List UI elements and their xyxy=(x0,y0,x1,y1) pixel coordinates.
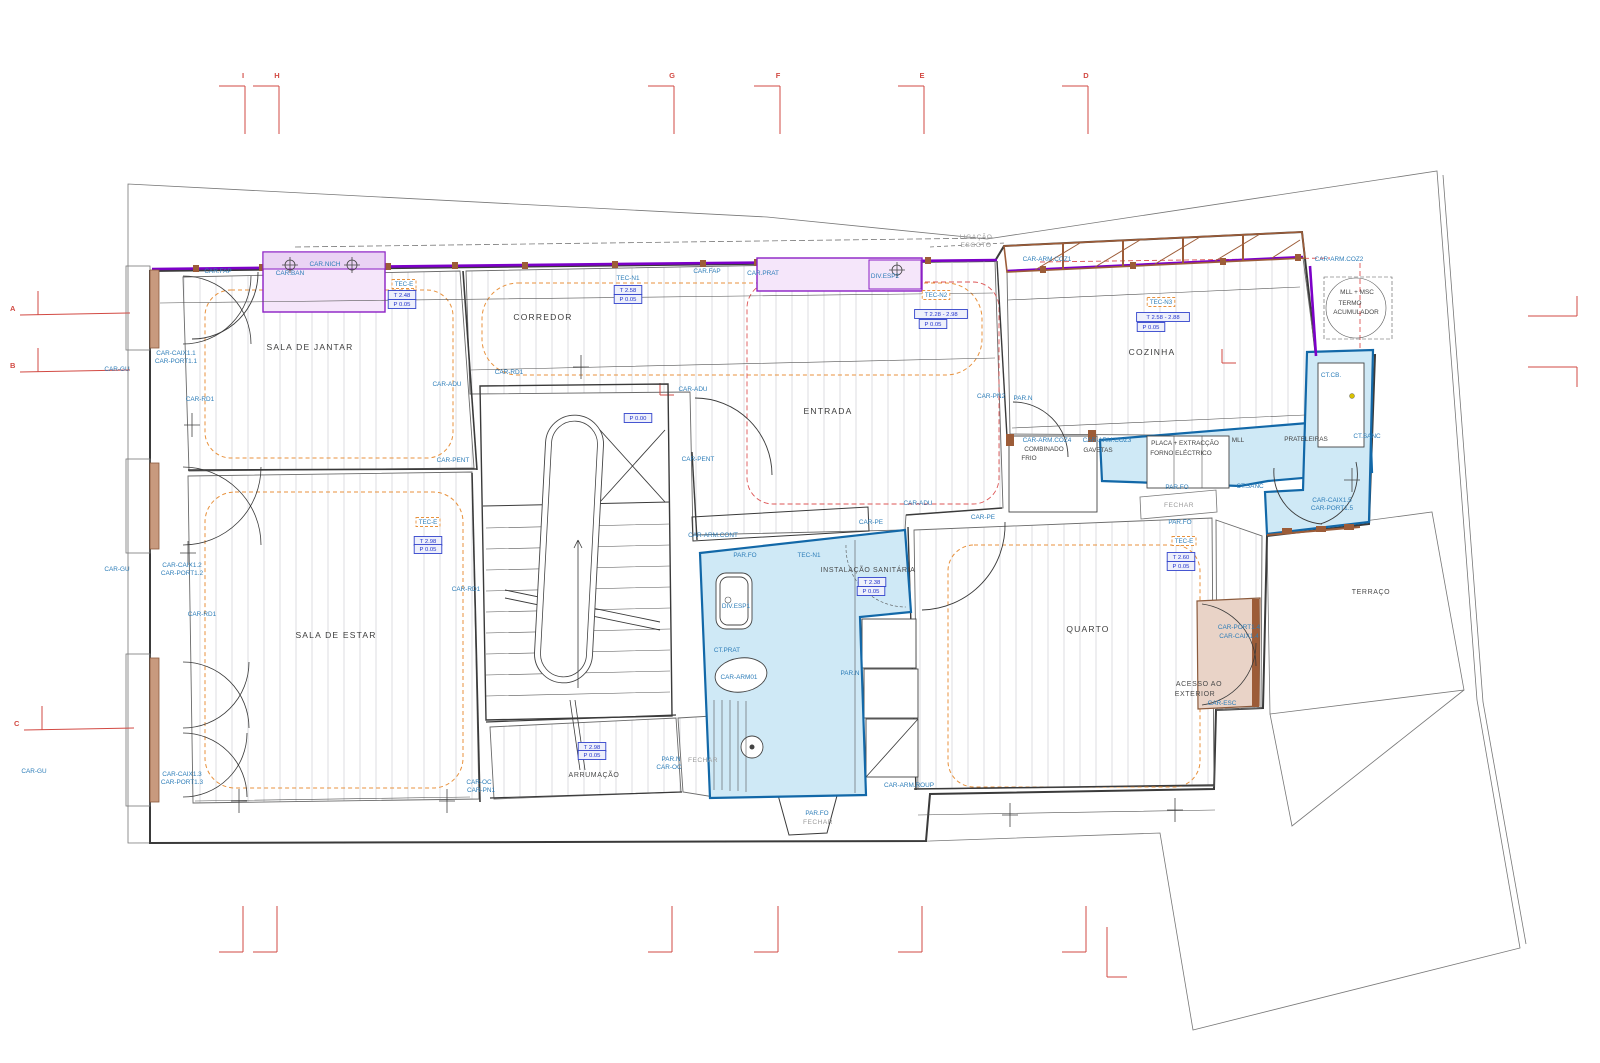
annotation-label: CAR-ARM.COZ3 xyxy=(1083,437,1132,444)
tag-text: T 2.58 xyxy=(620,288,637,294)
annotation-label: CAR-PENT xyxy=(437,457,470,464)
annotation-label: PAR.N xyxy=(840,670,859,677)
tag-text: P 0.05 xyxy=(1143,325,1161,331)
room-label: ENTRADA xyxy=(803,406,852,416)
annotation-label: CAR-GU xyxy=(21,768,47,775)
annotation-label: CAR-RD1 xyxy=(495,369,524,376)
tag-text: TEC-E xyxy=(419,519,438,526)
tag-text: P 0.05 xyxy=(1173,564,1191,570)
grid-marker-letter: C xyxy=(14,719,20,728)
grid-marker-letter: A xyxy=(10,304,16,313)
tag-text: TEC-N3 xyxy=(1150,299,1173,306)
room-label: INSTALAÇÃO SANITÁRIA xyxy=(821,565,916,574)
room-label: SALA DE ESTAR xyxy=(295,630,376,640)
annotation-label: CAR-CAIX1.3 xyxy=(162,771,202,778)
tag-text: T 2.48 xyxy=(394,293,411,299)
annotation-label: MLL xyxy=(1232,437,1245,444)
annotation-label: CAR.FAP xyxy=(693,268,720,275)
grid-tick xyxy=(648,86,674,134)
room-label: CORREDOR xyxy=(513,312,572,322)
grid-tick xyxy=(648,906,672,952)
annotation-label: CAR-PORT1.2 xyxy=(161,570,204,577)
tag-text: TEC-E xyxy=(395,281,414,288)
annotation-label: CAR-ARM.COZ1 xyxy=(1023,256,1072,263)
grid-tick xyxy=(1528,367,1577,387)
annotation-label: PAR.FO xyxy=(1168,519,1191,526)
grid-tick xyxy=(24,706,134,730)
room-label: QUARTO xyxy=(1066,624,1109,634)
annotation-label: MLL + MSC xyxy=(1340,289,1374,296)
annotation-label: PAR.N xyxy=(661,756,680,763)
terrace-area xyxy=(1267,512,1464,826)
annotation-label: CAR-ADU xyxy=(903,500,932,507)
annotation-label: PAR.FO xyxy=(733,552,756,559)
annotation-label: CAR-PN1 xyxy=(467,787,495,794)
annotation-label: CT.PRAT xyxy=(714,647,740,654)
tag-text: P 0.00 xyxy=(630,416,648,422)
grid-tick xyxy=(1062,906,1086,952)
annotation-label: CT.SANC xyxy=(1353,433,1381,440)
grid-tick xyxy=(1528,296,1577,316)
annotation-label: CAR-GU xyxy=(104,566,130,573)
tag-text: P 0.05 xyxy=(584,753,602,759)
grid-tick xyxy=(219,86,245,134)
annotation-label: CAR-PORT1.5 xyxy=(1311,505,1354,512)
annotation-label: LIGAÇÃO xyxy=(960,232,993,241)
grid-tick xyxy=(898,906,922,952)
tag-text: T 2.58 - 2.88 xyxy=(1146,315,1180,321)
annotation-label: CAR-RD1 xyxy=(452,586,481,593)
grid-marker-letter: G xyxy=(669,71,675,80)
grid-marker-letter: E xyxy=(919,71,924,80)
annotation-label: CT.CB. xyxy=(1321,372,1341,379)
annotation-label: FECHAR xyxy=(803,819,833,826)
grid-marker-letter: F xyxy=(776,71,781,80)
annotation-label: TEC-N1 xyxy=(616,275,640,282)
annotation-label: CAR.BAN xyxy=(276,270,305,277)
room-label: ACESSO AO xyxy=(1176,681,1222,688)
annotation-label: FECHAR xyxy=(688,757,718,764)
annotation-label: CAR-RD1 xyxy=(188,611,217,618)
grid-tick xyxy=(754,906,778,952)
annotation-label: FECHAR xyxy=(1164,502,1194,509)
floor-plan-page: IHGFEDABC CAR.FAPCAR.NICHCAR.BANCAR-CAIX… xyxy=(0,0,1600,1063)
annotation-label: CT.SANC xyxy=(1236,483,1264,490)
room-label: TERRAÇO xyxy=(1352,589,1390,596)
annotation-label: CAR-ARM.ROUP xyxy=(884,782,934,789)
annotation-label: ACUMULADOR xyxy=(1333,309,1379,316)
grid-marker-letter: H xyxy=(274,71,279,80)
grid-marker-letter: I xyxy=(242,71,244,80)
annotation-label: PLACA + EXTRACÇÃO xyxy=(1151,438,1219,447)
annotation-label: PAR.N xyxy=(1013,395,1032,402)
annotation-label: CAR-ADU xyxy=(678,386,707,393)
annotation-label: CAR-ESC xyxy=(1208,700,1237,707)
grid-marker-letter: B xyxy=(10,361,16,370)
annotation-label: FRIO xyxy=(1021,455,1036,462)
annotation-label: CAR.PRAT xyxy=(747,270,779,277)
annotation-label: TERMO xyxy=(1338,300,1361,307)
grid-tick xyxy=(898,86,924,134)
grid-tick xyxy=(20,291,130,315)
annotation-label: PAR.FO xyxy=(805,810,828,817)
grid-tick xyxy=(219,906,243,952)
floor-plan-canvas: IHGFEDABC CAR.FAPCAR.NICHCAR.BANCAR-CAIX… xyxy=(0,0,1600,1063)
annotation-label: CAR-RD1 xyxy=(186,396,215,403)
tag-text: T 2.28 - 2.98 xyxy=(924,312,958,318)
annotation-label: CAR-PORT1.3 xyxy=(161,779,204,786)
annotation-label: COMBINADO xyxy=(1024,446,1063,453)
annotation-label: CAR-OC xyxy=(466,779,492,786)
annotation-label: GAVETAS xyxy=(1083,447,1112,454)
room-label: COZINHA xyxy=(1129,347,1176,357)
annotation-label: CAR-CAIX1.1 xyxy=(156,350,196,357)
grid-tick xyxy=(253,86,279,134)
annotation-label: DIV.ESP1 xyxy=(722,603,751,610)
annotation-label: CAR-PE xyxy=(859,519,883,526)
annotation-label: CAR-ARM.CONT xyxy=(688,532,738,539)
tag-text: P 0.05 xyxy=(420,547,438,553)
tag-text: T 2.60 xyxy=(1173,555,1190,561)
annotation-label: CAR-ADU xyxy=(432,381,461,388)
annotation-label: CAR-CAIX1.4 xyxy=(1219,633,1259,640)
tag-text: T 2.38 xyxy=(864,580,881,586)
grid-tick xyxy=(754,86,780,134)
tag-text: P 0.05 xyxy=(863,589,881,595)
grid-tick xyxy=(253,906,277,952)
annotation-label: CAR-PE xyxy=(971,514,995,521)
annotation-label: PAR.FO xyxy=(1165,484,1188,491)
annotation-label: CAR-OC xyxy=(656,764,682,771)
annotation-label: DIV.ESP2 xyxy=(871,273,900,280)
grid-tick xyxy=(1107,927,1127,977)
annotation-label: CAR-ARM.COZ2 xyxy=(1315,256,1364,263)
annotation-label: CAR-PENT xyxy=(682,456,715,463)
annotation-label: CAR.NICH xyxy=(310,261,341,268)
annotation-label: CAR-CAIX1.2 xyxy=(162,562,202,569)
annotation-label: FORNO ELÉCTRICO xyxy=(1150,448,1211,457)
annotation-label: CAR-PORT1.1 xyxy=(155,358,198,365)
annotation-label: PRATELEIRAS xyxy=(1284,436,1328,443)
tag-text: P 0.05 xyxy=(925,322,943,328)
tag-text: P 0.05 xyxy=(620,297,638,303)
room-label: EXTERIOR xyxy=(1175,691,1216,698)
tag-text: TEC-N2 xyxy=(925,292,948,299)
tag-text: P 0.05 xyxy=(394,302,412,308)
annotation-label: CAR-ARM.COZ4 xyxy=(1023,437,1072,444)
annotation-label: TEC-N1 xyxy=(797,552,821,559)
grid-marker-letter: D xyxy=(1083,71,1089,80)
annotation-label: CAR-PORT1.4 xyxy=(1218,624,1261,631)
annotation-label: CAR-GU xyxy=(104,366,130,373)
grid-tick xyxy=(1062,86,1088,134)
annotation-label: CAR-PN2 xyxy=(977,393,1005,400)
room-label: ARRUMAÇÃO xyxy=(569,770,620,779)
annotation-label: CAR.FAP xyxy=(204,268,231,275)
room-label: SALA DE JANTAR xyxy=(266,342,353,352)
annotation-label: CAR-CAIX1.5 xyxy=(1312,497,1352,504)
tag-text: TEC-E xyxy=(1175,538,1194,545)
annotation-label: ESGOTO xyxy=(960,242,991,249)
annotation-label: CAR-ARM01 xyxy=(721,674,758,681)
